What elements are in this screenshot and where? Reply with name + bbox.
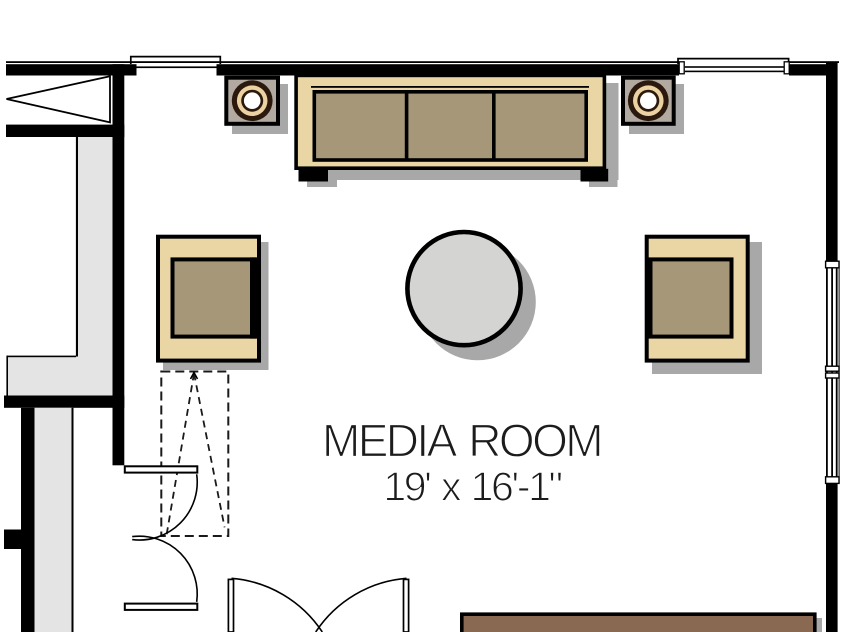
svg-text:MEDIA ROOM: MEDIA ROOM [322, 415, 601, 467]
svg-text:19' x 16'-1": 19' x 16'-1" [383, 464, 561, 510]
